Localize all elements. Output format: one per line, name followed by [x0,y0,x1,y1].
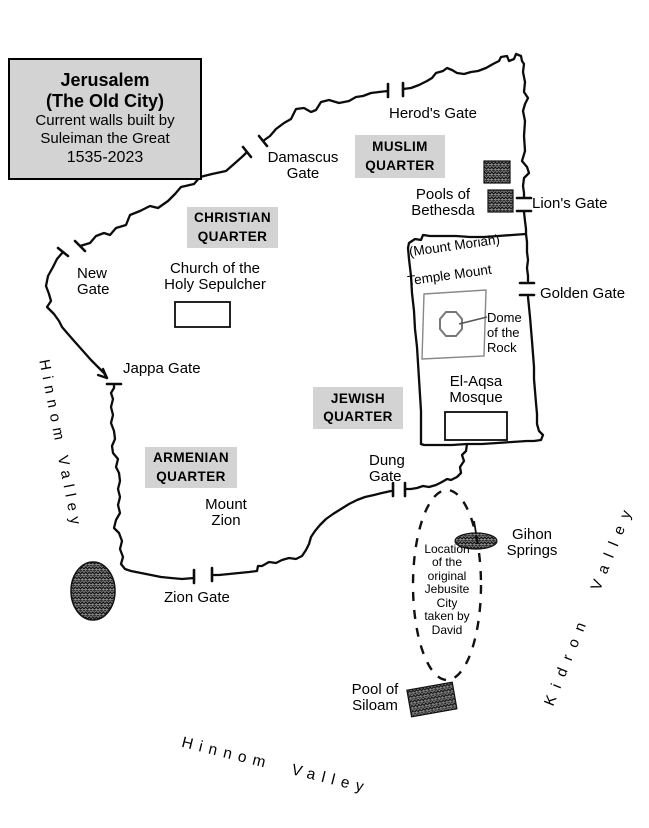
church-holy-sepulcher-rect [175,302,230,327]
map-subtitle-line1: Current walls built by [35,112,174,130]
gate-label-herods: Herod's Gate [389,106,477,122]
gate-tick-lions [517,198,531,211]
wall-north [263,91,388,141]
gate-tick-herods [388,83,403,97]
gate-label-damascus: Damascus Gate [258,150,348,182]
map-title-line2: (The Old City) [46,91,164,112]
gate-tick-zion [194,568,212,583]
jappa-arrowhead [98,369,107,378]
landmark-label-pools-bethesda: Pools of Bethesda [403,187,483,219]
quarter-label-armenian: ARMENIAN QUARTER [145,447,237,488]
quarter-label-muslim: MUSLIM QUARTER [355,135,445,178]
map-title-box: Jerusalem (The Old City) Current walls b… [8,58,202,180]
gihon-spring-line [474,521,476,533]
landmark-label-dome-of-rock: Dome of the Rock [487,311,522,356]
landmark-label-pool-of-siloam: Pool of Siloam [345,682,405,714]
bethesda-pool-2 [488,190,513,212]
gate-tick-golden [520,283,534,295]
el-aqsa-mosque-rect [445,412,507,440]
jerusalem-old-city-map: Jerusalem (The Old City) Current walls b… [0,0,649,828]
map-subtitle-line2: Suleiman the Great [40,130,169,148]
siloam-pool [407,682,457,717]
quarter-label-christian: CHRISTIAN QUARTER [187,207,278,248]
gate-label-dung: Dung Gate [369,453,405,485]
gate-label-jappa: Jappa Gate [123,361,201,377]
wall-dung-branch [405,444,467,489]
gate-label-lions: Lion's Gate [532,196,607,212]
map-title-line1: Jerusalem [60,70,149,91]
dome-pointer-line [459,317,487,324]
landmark-label-church: Church of the Holy Sepulcher [155,261,275,293]
landmark-label-mount-zion: Mount Zion [190,497,262,529]
gate-label-zion: Zion Gate [164,590,230,606]
quarter-label-jewish: JEWISH QUARTER [313,387,403,429]
landmark-label-el-aqsa: El-Aqsa Mosque [437,374,515,406]
gate-label-golden: Golden Gate [540,286,625,302]
landmark-label-jebusite-city: Location of the original Jebusite City t… [407,543,487,637]
temple-mount-square [422,290,486,359]
gate-label-new: New Gate [77,266,110,298]
bethesda-pool-1 [484,161,510,183]
dome-of-rock-octagon [440,312,462,336]
west-pool [71,562,115,620]
landmark-label-gihon-springs: Gihon Springs [501,527,563,559]
wall-east [524,212,528,281]
map-title-years: 1535-2023 [67,148,144,168]
